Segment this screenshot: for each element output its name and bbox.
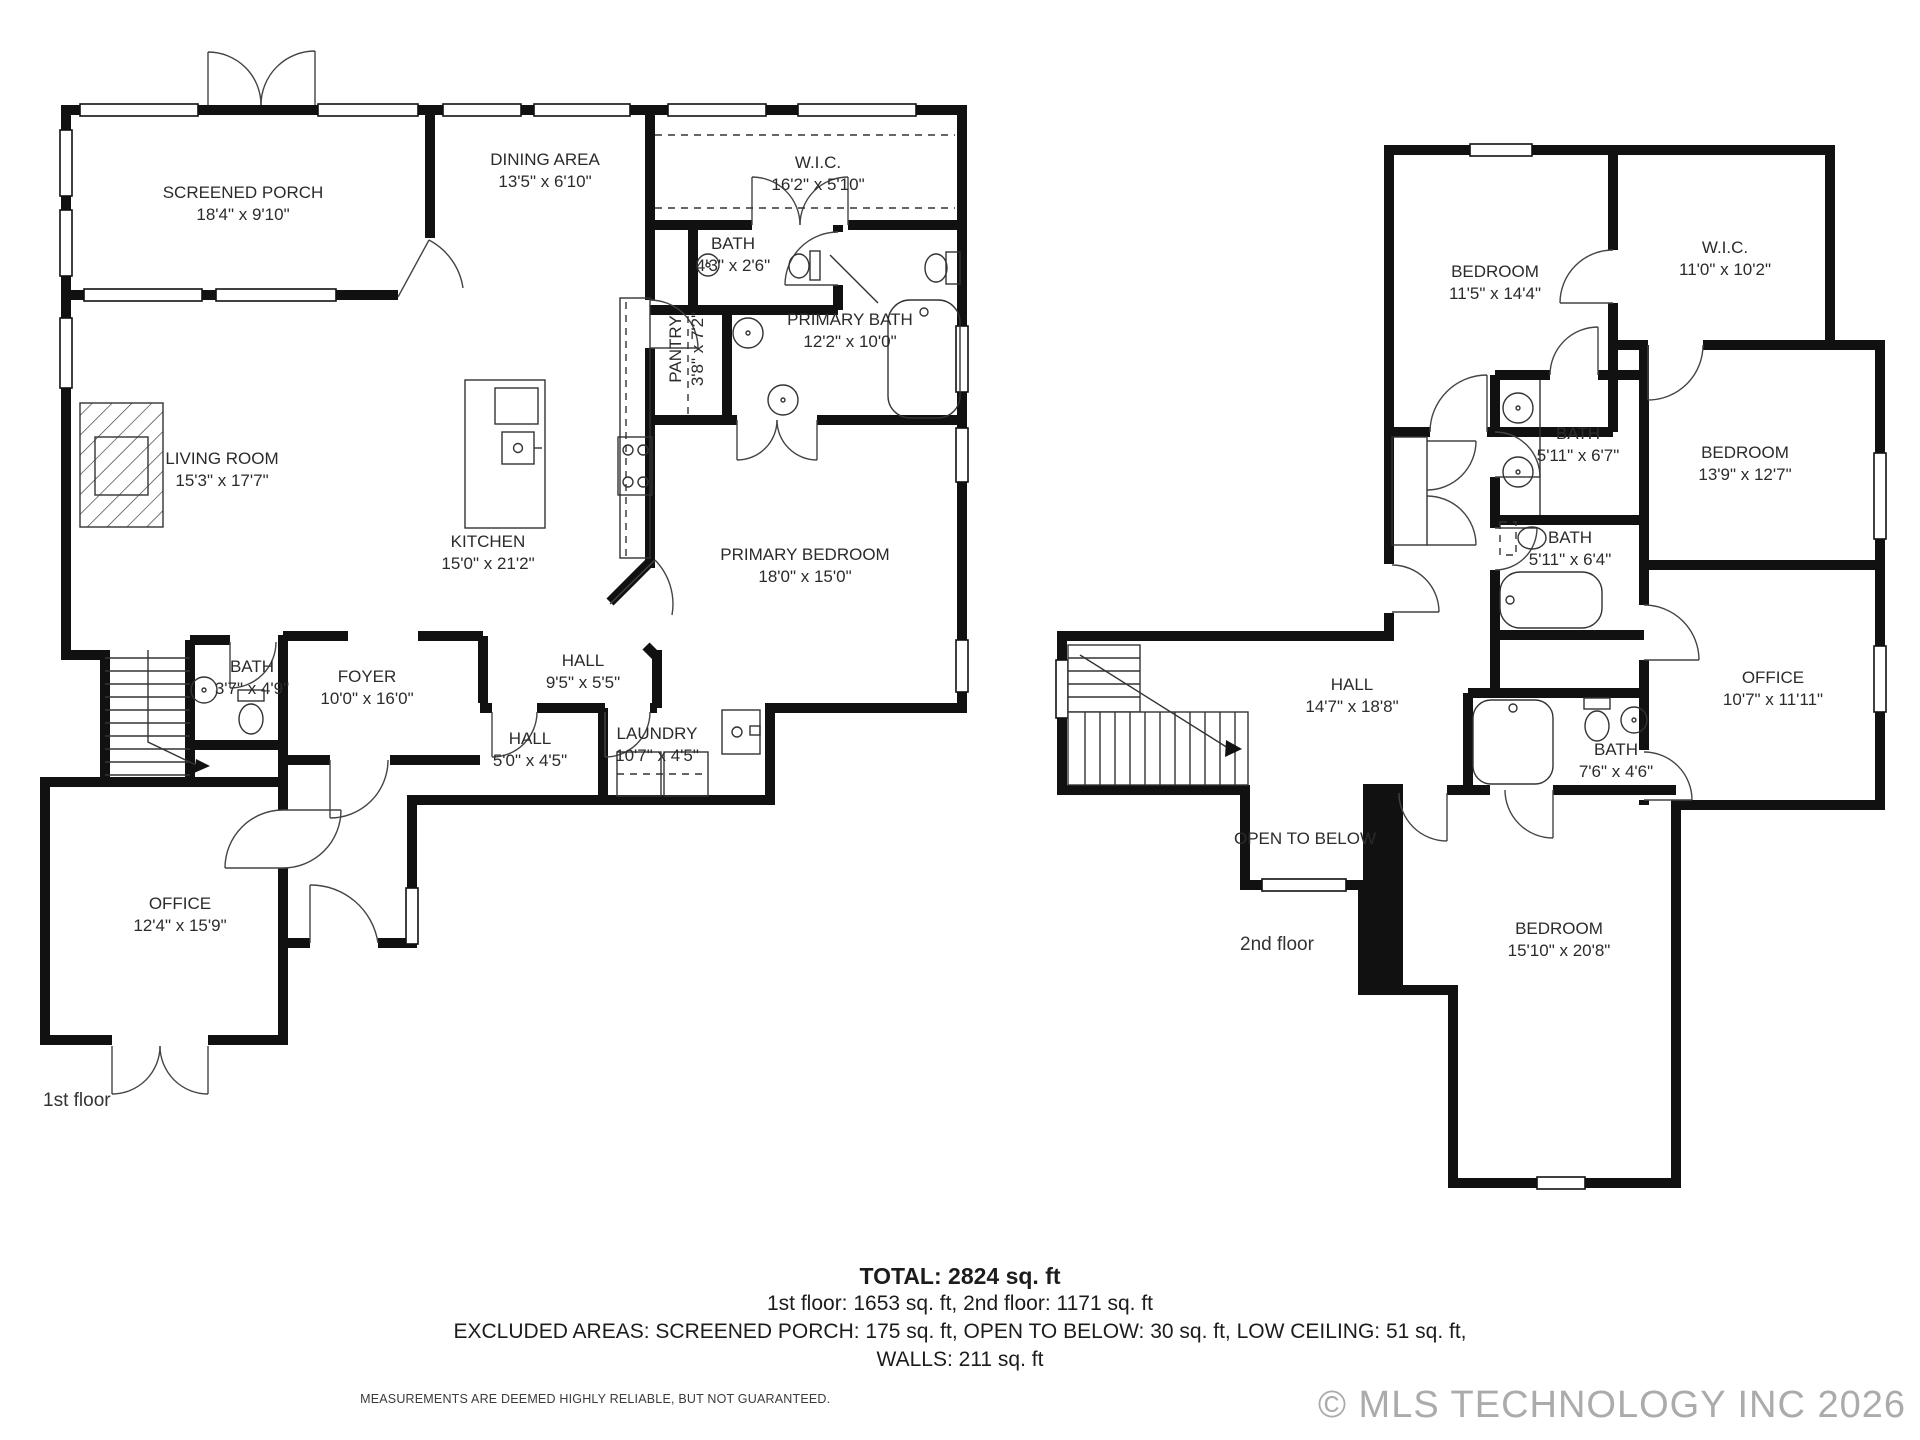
room-dims: 5'0" x 4'5"	[493, 750, 567, 772]
room-name: BATH	[1548, 527, 1592, 549]
summary-total: TOTAL: 2824 sq. ft	[0, 1262, 1920, 1290]
room-dims: 14'7" x 18'8"	[1305, 696, 1398, 718]
room-label-office-2nd: OFFICE 10'7" x 11'11"	[1723, 667, 1823, 711]
summary-floors: 1st floor: 1653 sq. ft, 2nd floor: 1171 …	[0, 1290, 1920, 1318]
caption-1st-floor: 1st floor	[43, 1090, 111, 1112]
room-label-laundry: LAUNDRY 10'7" x 4'5"	[615, 723, 699, 767]
room-dims: 12'4" x 15'9"	[133, 915, 226, 937]
room-label-office-1st: OFFICE 12'4" x 15'9"	[133, 893, 226, 937]
summary-walls: WALLS: 211 sq. ft	[0, 1346, 1920, 1374]
room-name: OPEN TO BELOW	[1234, 828, 1376, 850]
room-name: KITCHEN	[451, 531, 526, 553]
room-dims: 4'3" x 2'6"	[696, 255, 770, 277]
room-dims: 16'2" x 5'10"	[771, 174, 864, 196]
room-dims: 15'10" x 20'8"	[1508, 940, 1611, 962]
room-dims: 18'4" x 9'10"	[196, 204, 289, 226]
room-dims: 13'9" x 12'7"	[1698, 464, 1791, 486]
room-label-bath-c: BATH 7'6" x 4'6"	[1579, 739, 1653, 783]
room-label-dining-area: DINING AREA 13'5" x 6'10"	[490, 149, 600, 193]
room-label-primary-bath: PRIMARY BATH 12'2" x 10'0"	[787, 309, 913, 353]
room-dims: 10'7" x 4'5"	[615, 745, 699, 767]
room-name: PRIMARY BEDROOM	[720, 544, 889, 566]
room-dims: 11'5" x 14'4"	[1449, 283, 1541, 305]
room-name: OFFICE	[1742, 667, 1804, 689]
room-name: BATH	[1594, 739, 1638, 761]
room-label-hall-2nd: HALL 14'7" x 18'8"	[1305, 674, 1398, 718]
room-label-wic-2nd: W.I.C. 11'0" x 10'2"	[1679, 237, 1771, 281]
room-dims: 3'7" x 4'9"	[215, 678, 289, 700]
room-label-primary-bedroom: PRIMARY BEDROOM 18'0" x 15'0"	[720, 544, 889, 588]
room-label-bath-a: BATH 5'11" x 6'7"	[1537, 423, 1620, 467]
room-dims: 9'5" x 5'5"	[546, 672, 620, 694]
room-name: HALL	[1331, 674, 1374, 696]
room-name: W.I.C.	[795, 152, 841, 174]
caption-2nd-floor: 2nd floor	[1240, 934, 1314, 956]
room-name: PANTRY	[665, 315, 687, 382]
room-label-bath-37: BATH 3'7" x 4'9"	[215, 656, 289, 700]
watermark-copyright: © MLS TECHNOLOGY INC 2026	[1318, 1384, 1906, 1427]
area-summary: TOTAL: 2824 sq. ft 1st floor: 1653 sq. f…	[0, 1262, 1920, 1374]
room-name: LIVING ROOM	[165, 448, 278, 470]
room-label-open-to-below: OPEN TO BELOW	[1234, 828, 1376, 850]
room-name: BATH	[711, 233, 755, 255]
room-dims: 10'0" x 16'0"	[320, 688, 413, 710]
room-label-screened-porch: SCREENED PORCH 18'4" x 9'10"	[163, 182, 324, 226]
room-label-living-room: LIVING ROOM 15'3" x 17'7"	[165, 448, 278, 492]
room-dims: 7'6" x 4'6"	[1579, 761, 1653, 783]
room-name: LAUNDRY	[617, 723, 698, 745]
room-name: DINING AREA	[490, 149, 600, 171]
room-dims: 5'11" x 6'4"	[1529, 549, 1612, 571]
room-dims: 18'0" x 15'0"	[758, 566, 851, 588]
room-name: BEDROOM	[1515, 918, 1603, 940]
room-dims: 5'11" x 6'7"	[1537, 445, 1620, 467]
room-name: SCREENED PORCH	[163, 182, 324, 204]
summary-excluded: EXCLUDED AREAS: SCREENED PORCH: 175 sq. …	[0, 1318, 1920, 1346]
room-label-bath-b: BATH 5'11" x 6'4"	[1529, 527, 1612, 571]
floorplan-page: SCREENED PORCH 18'4" x 9'10" DINING AREA…	[0, 0, 1920, 1440]
room-name: BATH	[1556, 423, 1600, 445]
room-name: FOYER	[338, 666, 397, 688]
room-dims: 13'5" x 6'10"	[498, 171, 591, 193]
room-name: PRIMARY BATH	[787, 309, 913, 331]
room-dims: 3'8" x 7'2"	[687, 312, 709, 386]
room-label-bedroom-c: BEDROOM 15'10" x 20'8"	[1508, 918, 1611, 962]
room-dims: 10'7" x 11'11"	[1723, 689, 1823, 711]
room-label-pantry: PANTRY 3'8" x 7'2"	[665, 312, 709, 386]
room-label-bedroom-b: BEDROOM 13'9" x 12'7"	[1698, 442, 1791, 486]
room-name: W.I.C.	[1702, 237, 1748, 259]
room-label-kitchen: KITCHEN 15'0" x 21'2"	[441, 531, 534, 575]
room-dims: 12'2" x 10'0"	[803, 331, 896, 353]
room-dims: 15'0" x 21'2"	[441, 553, 534, 575]
room-label-foyer: FOYER 10'0" x 16'0"	[320, 666, 413, 710]
room-label-hall-b: HALL 5'0" x 4'5"	[493, 728, 567, 772]
room-label-hall-a: HALL 9'5" x 5'5"	[546, 650, 620, 694]
room-dims: 15'3" x 17'7"	[175, 470, 268, 492]
room-name: HALL	[562, 650, 605, 672]
room-name: BEDROOM	[1701, 442, 1789, 464]
room-label-bedroom-a: BEDROOM 11'5" x 14'4"	[1449, 261, 1541, 305]
room-name: OFFICE	[149, 893, 211, 915]
room-name: BATH	[230, 656, 274, 678]
room-dims: 11'0" x 10'2"	[1679, 259, 1771, 281]
room-label-bath-small: BATH 4'3" x 2'6"	[696, 233, 770, 277]
room-name: HALL	[509, 728, 552, 750]
fireplace	[80, 403, 163, 527]
room-label-wic-1st: W.I.C. 16'2" x 5'10"	[771, 152, 864, 196]
room-name: BEDROOM	[1451, 261, 1539, 283]
disclaimer-text: MEASUREMENTS ARE DEEMED HIGHLY RELIABLE,…	[0, 1392, 1190, 1406]
